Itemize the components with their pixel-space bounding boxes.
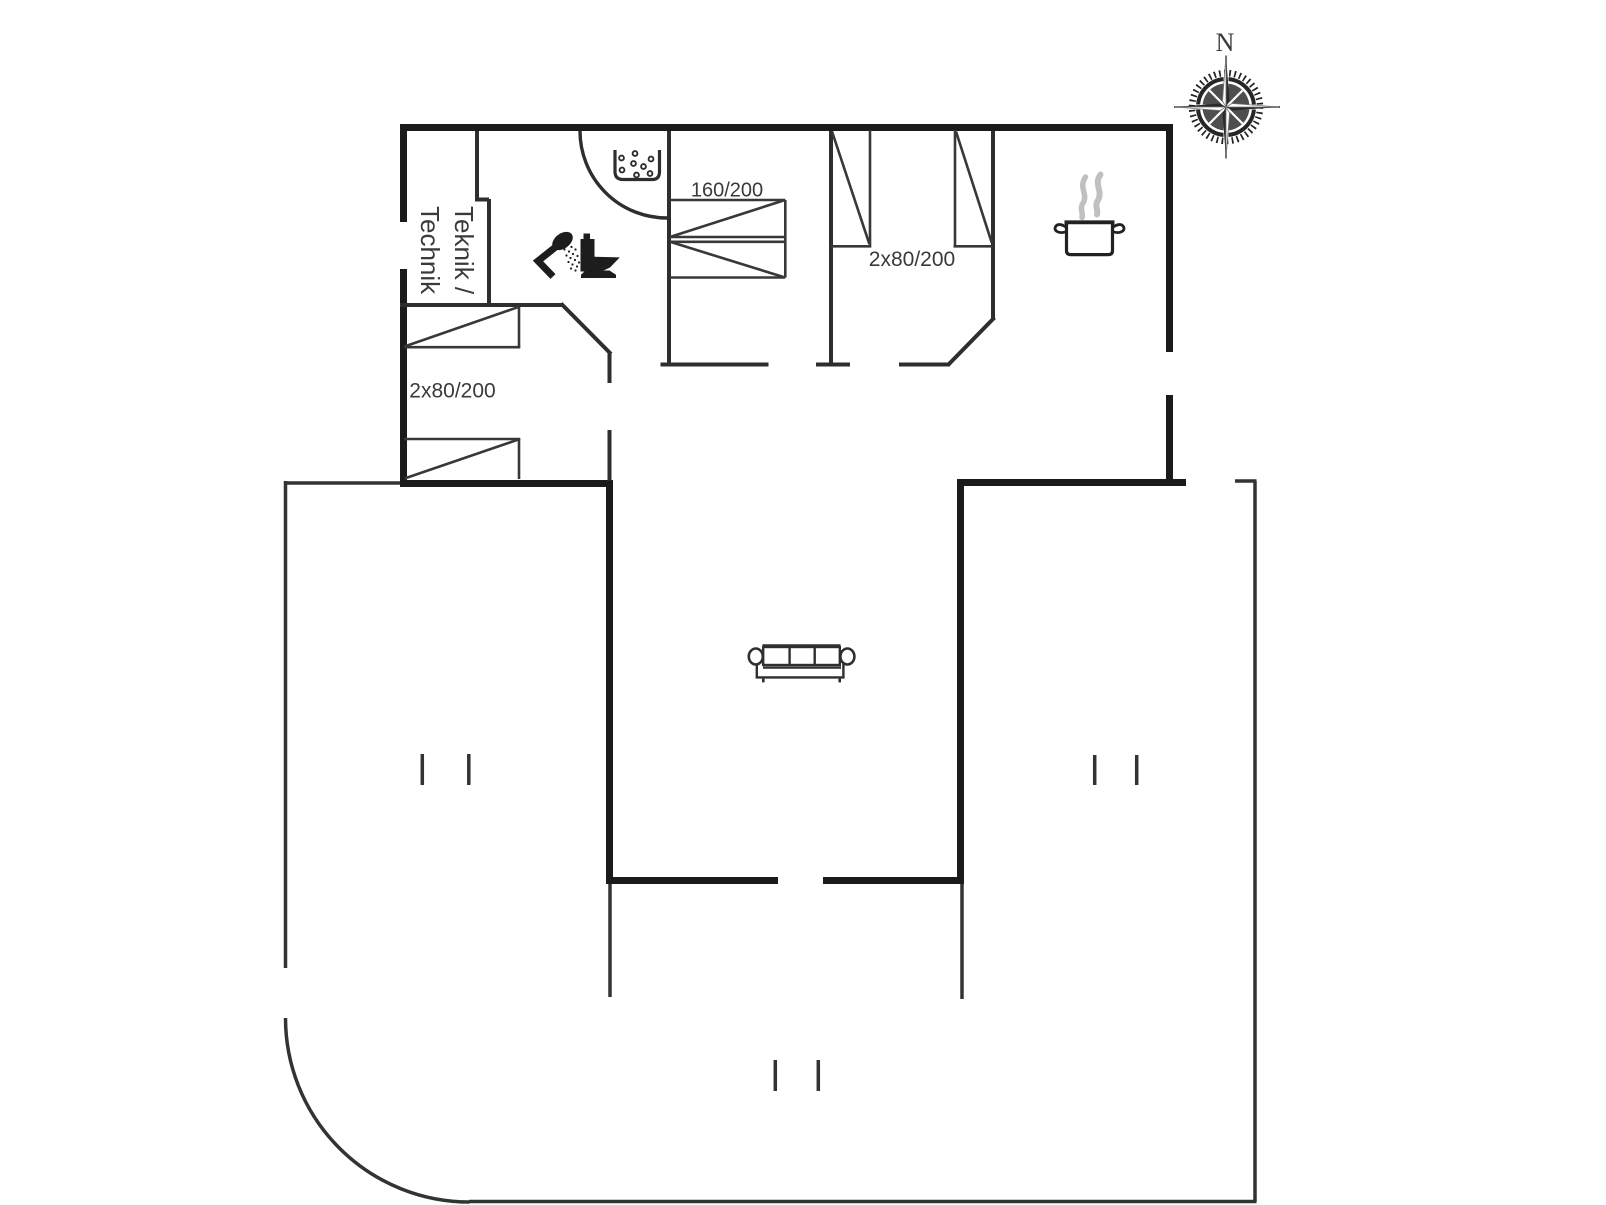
- svg-text:Teknik /: Teknik /: [449, 206, 479, 295]
- svg-text:2x80/200: 2x80/200: [869, 248, 955, 271]
- svg-text:160/200: 160/200: [691, 180, 763, 202]
- svg-text:Technik: Technik: [415, 206, 445, 295]
- svg-text:2x80/200: 2x80/200: [409, 380, 495, 403]
- svg-text:N: N: [1216, 28, 1235, 57]
